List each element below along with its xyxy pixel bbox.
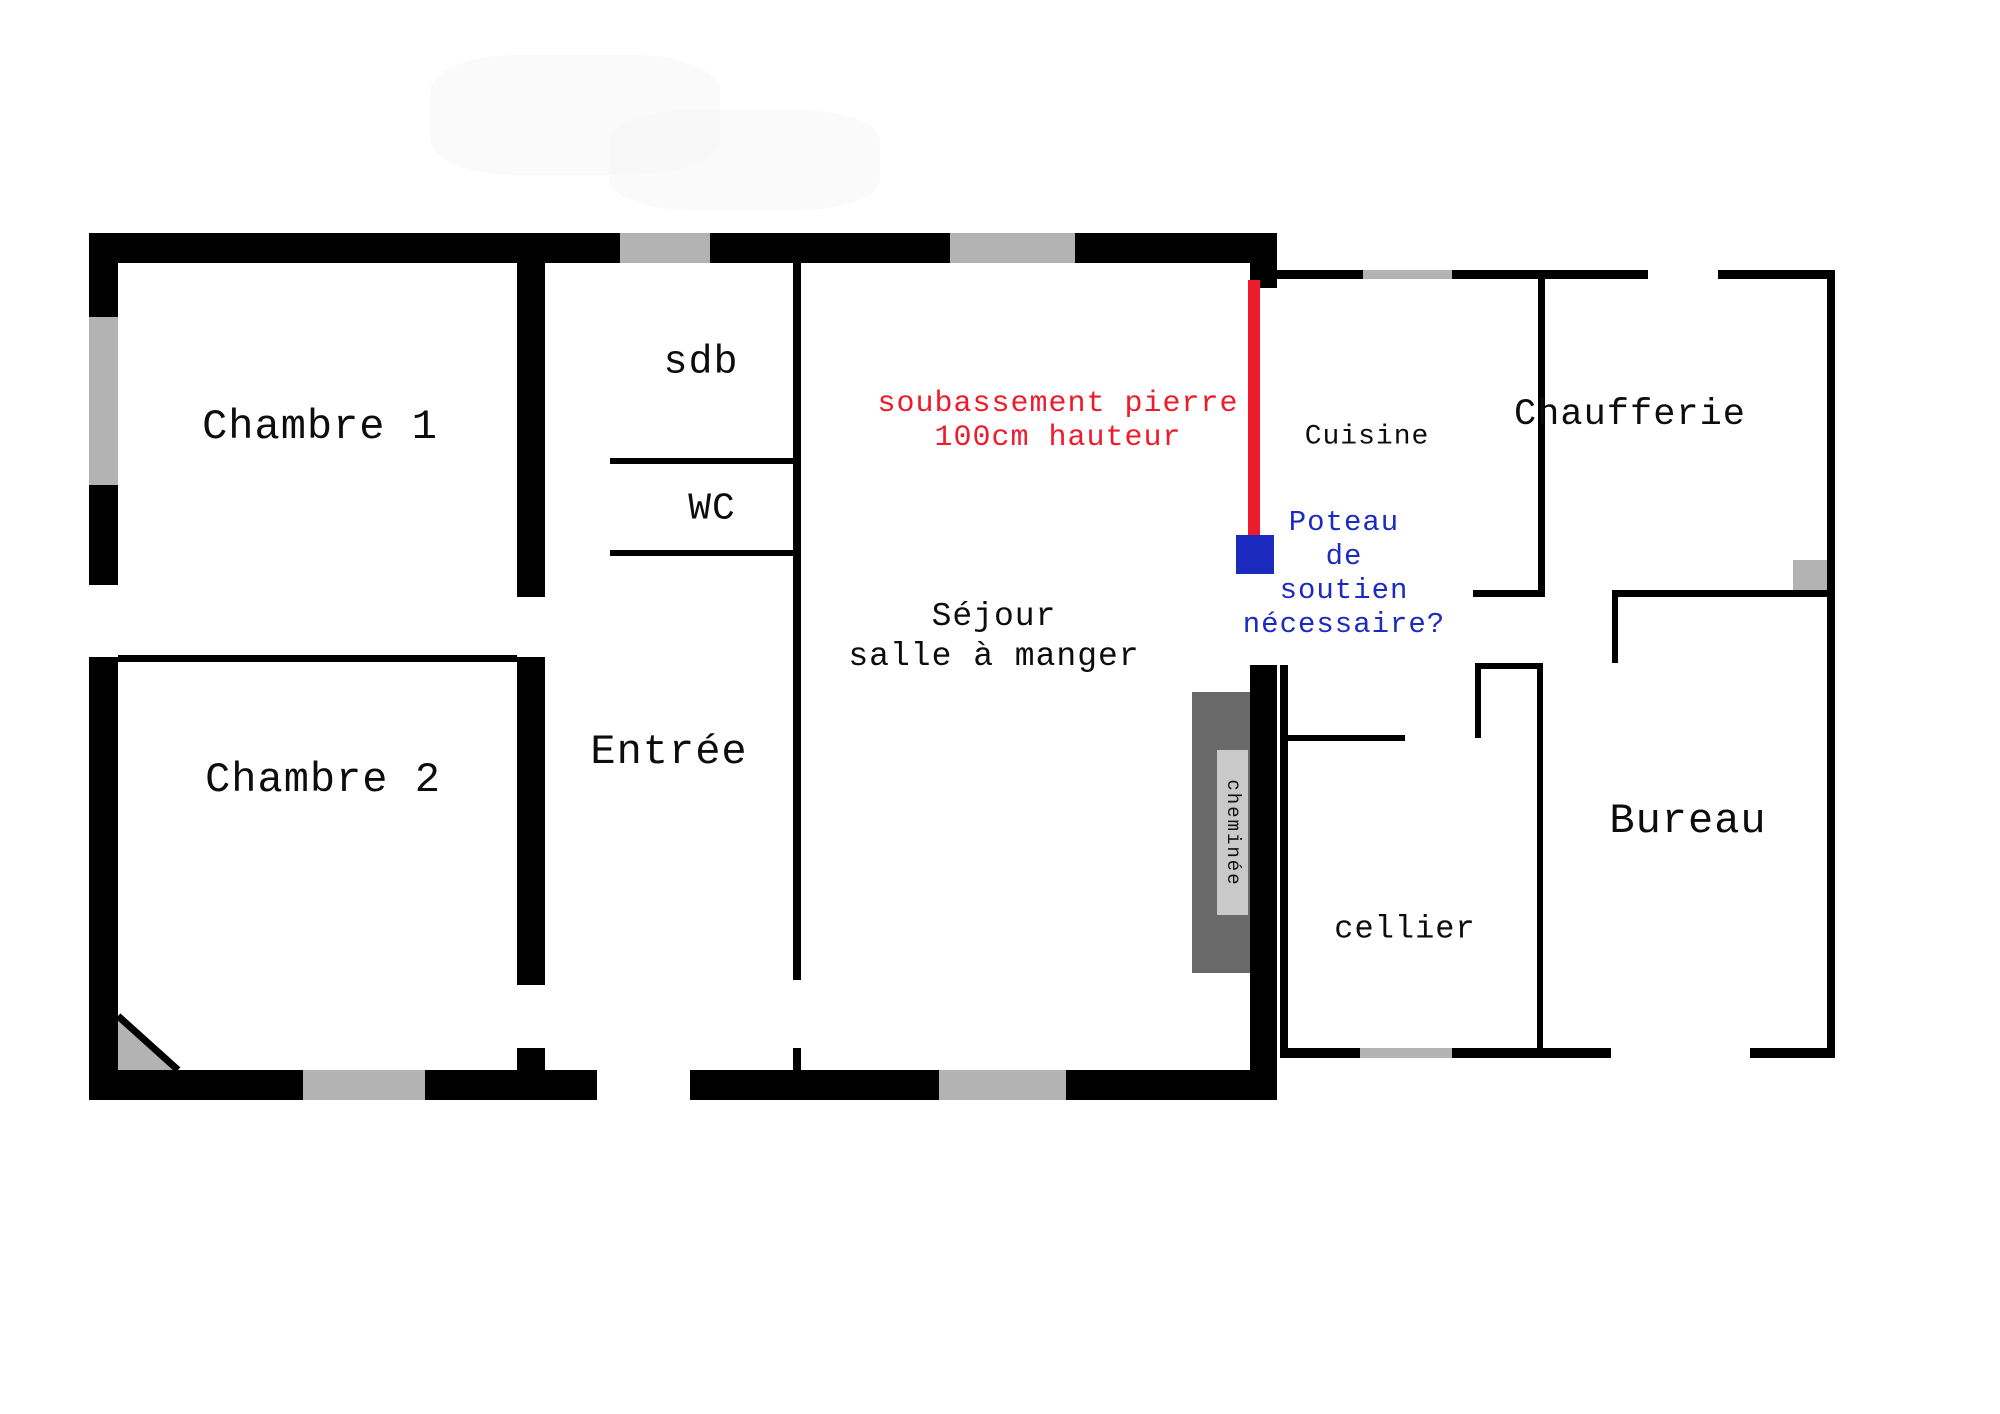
window-segment [1360, 1048, 1452, 1058]
annotation-stone-base: soubassement pierre 100cm hauteur [877, 387, 1238, 455]
wall-right-main-lower [1250, 665, 1277, 1100]
passage-wall-vertical [1475, 663, 1481, 738]
room-label-chambre2: Chambre 2 [205, 756, 441, 804]
window-segment [620, 233, 710, 263]
corner-hatch [114, 1008, 184, 1072]
wall-chambres-stub [517, 1048, 545, 1070]
wall-left-right-building [1280, 665, 1288, 1058]
room-label-entree: Entrée [590, 728, 747, 776]
annotation-support-post: Poteau de soutien nécessaire? [1243, 506, 1445, 642]
divider-cuisine-cellier [1280, 735, 1405, 741]
divider-chambre1-chambre2 [118, 655, 517, 662]
entrance-door-opening [597, 1070, 690, 1100]
support-text-line3: soutien [1243, 574, 1445, 608]
wall-top-right-building [1277, 270, 1835, 279]
floor-plan-canvas: cheminée Chambre 1 Chambre 2 sdb WC Entr… [0, 0, 2000, 1414]
wall-sejour-left [793, 263, 801, 980]
window-segment [303, 1070, 425, 1100]
divider-sdb-wc [610, 458, 797, 464]
window-segment [950, 233, 1075, 263]
window-segment [1363, 270, 1452, 279]
room-label-bureau: Bureau [1609, 797, 1766, 845]
wall-cuisine-bottom [1473, 590, 1545, 597]
door-opening [1648, 270, 1718, 279]
stone-base-line [1248, 280, 1260, 535]
room-label-cuisine: Cuisine [1305, 422, 1430, 453]
chimney-label: cheminée [1222, 779, 1244, 886]
door-opening [89, 585, 118, 657]
door-jamb [1612, 597, 1618, 663]
door-opening [1611, 1048, 1750, 1058]
wall-right-right-building [1827, 270, 1835, 1058]
room-label-chambre1: Chambre 1 [202, 403, 438, 451]
sejour-line1: Séjour [848, 597, 1139, 637]
sejour-line2: salle à manger [848, 637, 1139, 677]
stone-base-text-line1: soubassement pierre [877, 387, 1238, 421]
divider-chaufferie-bureau [1612, 590, 1835, 597]
wall-chambres-upper [517, 263, 545, 597]
room-label-chaufferie: Chaufferie [1514, 394, 1746, 436]
support-text-line1: Poteau [1243, 506, 1445, 540]
wall-sejour-left-stub [793, 1048, 801, 1070]
room-label-sdb: sdb [663, 341, 738, 386]
wall-chambres-middle [517, 657, 545, 985]
passage-wall-horizontal [1475, 663, 1543, 669]
window-segment [939, 1070, 1066, 1100]
room-label-cellier: cellier [1334, 911, 1475, 948]
stone-base-text-line2: 100cm hauteur [877, 421, 1238, 455]
window-segment [89, 317, 118, 485]
room-label-wc: WC [688, 488, 736, 531]
divider-wc-entree [610, 550, 797, 556]
erased-smudge [610, 110, 880, 210]
wall-cellier-bureau [1537, 663, 1543, 1058]
room-label-sejour: Séjour salle à manger [848, 597, 1139, 677]
support-text-line4: nécessaire? [1243, 608, 1445, 642]
wall-cuisine-chaufferie [1538, 279, 1545, 597]
support-text-line2: de [1243, 540, 1445, 574]
